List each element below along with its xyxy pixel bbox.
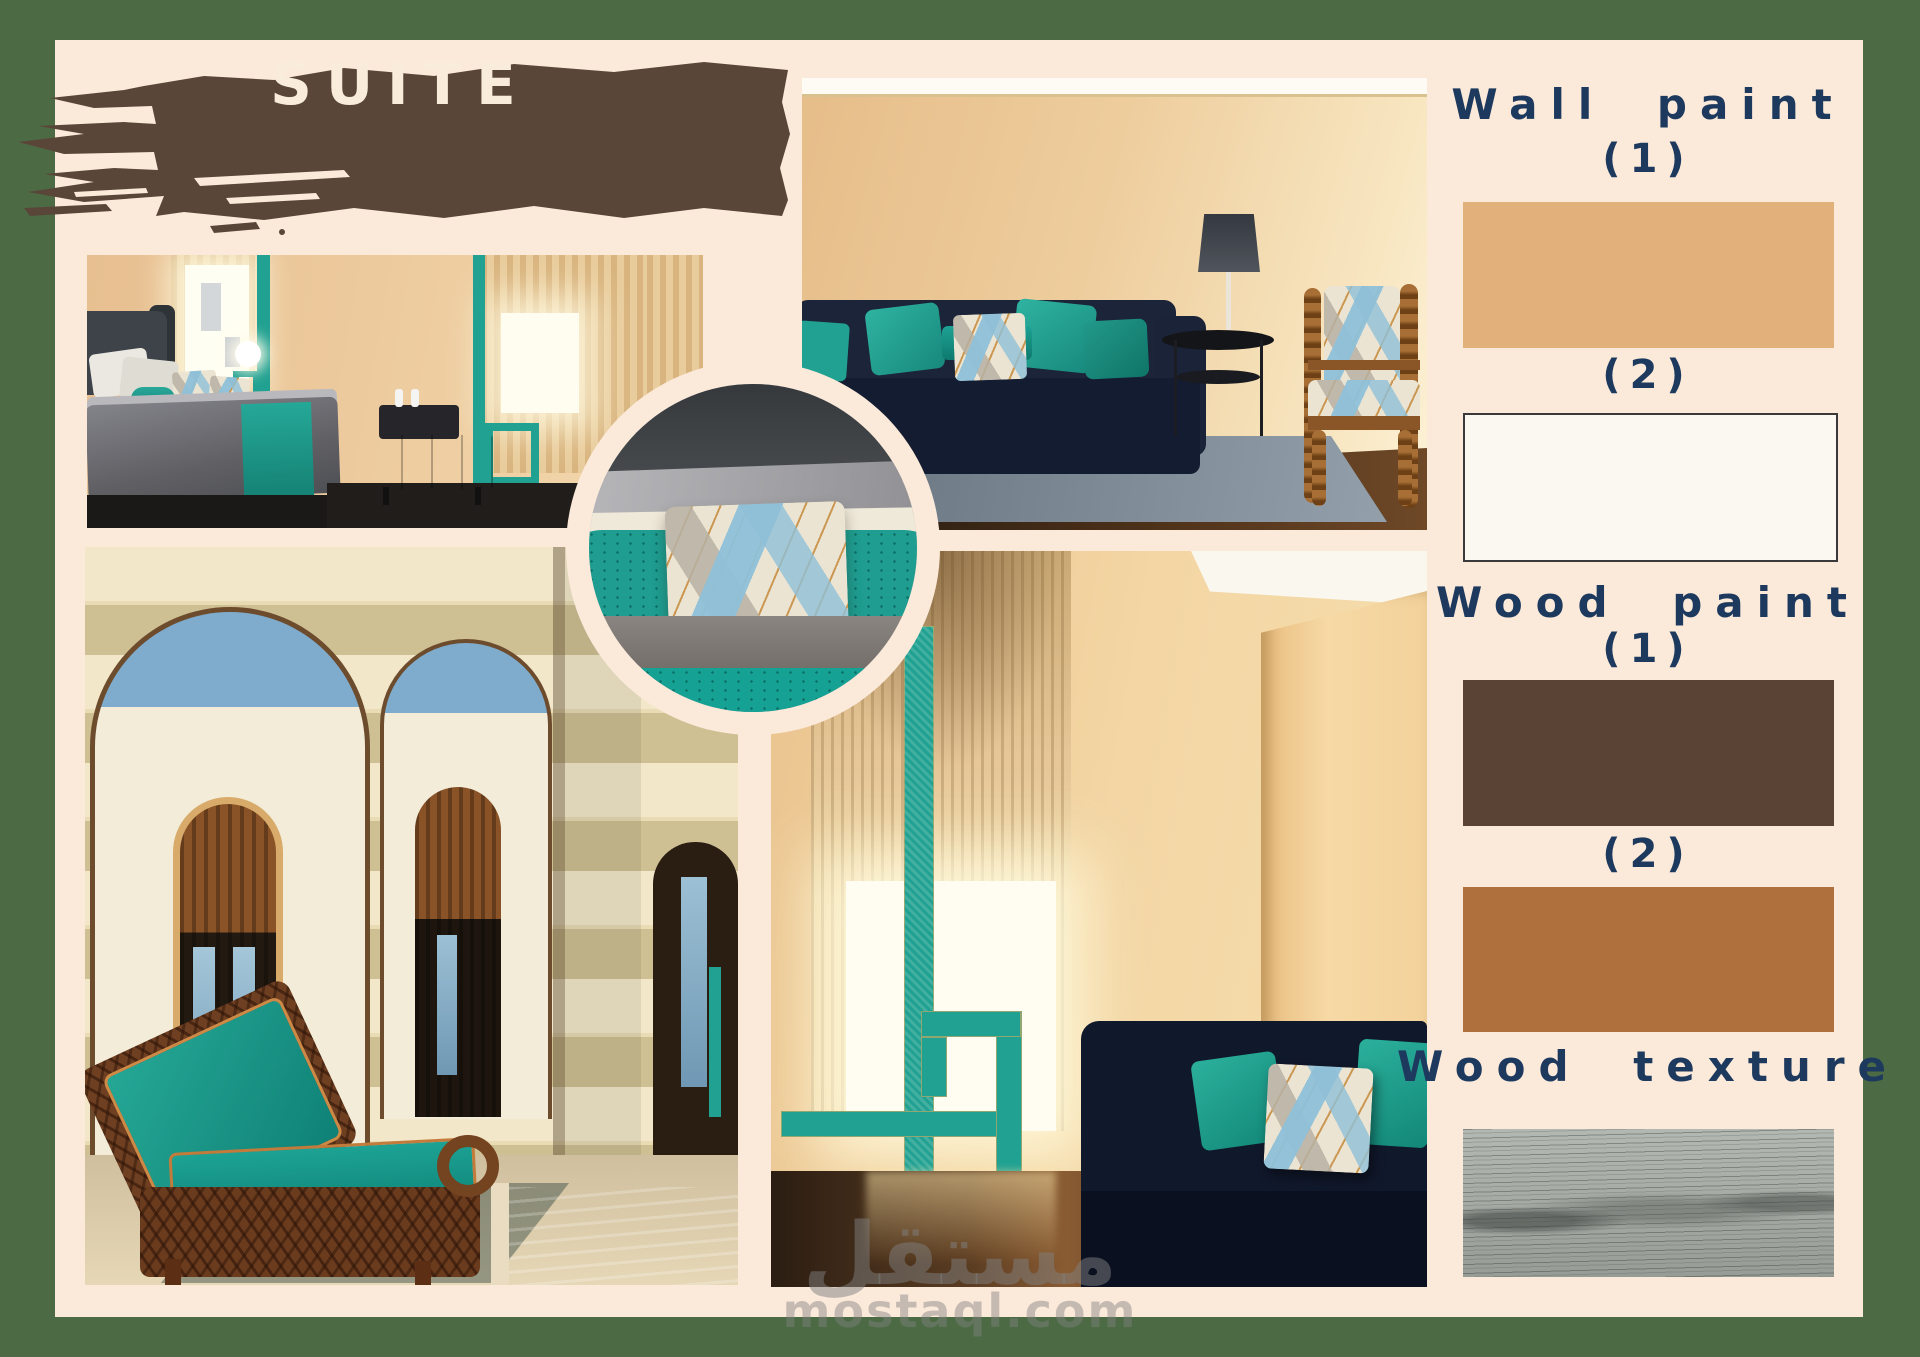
bedroom-bottle: [395, 389, 403, 407]
pool-water: [505, 1187, 738, 1285]
bedroom-wall-art: [201, 283, 221, 331]
side-table-top: [1162, 330, 1274, 350]
bedroom-bottle-2: [411, 389, 419, 407]
opening-curtain: [709, 967, 721, 1117]
bedroom-lamp-globe: [235, 341, 261, 367]
sofa-pillow-teal-3: [1083, 318, 1150, 379]
chaise-leg-2: [415, 1261, 431, 1285]
chair-leg: [1312, 430, 1326, 506]
bench-leg-2: [475, 487, 481, 505]
sofa-pillow-teal: [864, 302, 945, 377]
wall-paint-label-2: (2): [1368, 352, 1920, 398]
board-title: SUITE: [140, 50, 660, 118]
wall-paint-label-1: (1): [1368, 136, 1920, 182]
wood-paint-label-1: (1): [1368, 626, 1920, 672]
living-ceiling-shadow: [802, 94, 1427, 97]
wall-paint-heading: Wall paint: [1368, 80, 1920, 129]
living-ceiling: [802, 78, 1427, 94]
lr2-window-light: [846, 881, 1056, 1131]
pool-edge: [491, 1183, 509, 1285]
suite-mood-board: SUITE: [0, 0, 1920, 1357]
wood-paint-swatch-1: [1463, 680, 1834, 826]
pillow-closeup-inset: [566, 361, 940, 735]
courtyard-door-2: [415, 787, 501, 1117]
door-2-glass: [437, 935, 457, 1075]
lr2-pillow-geometric: [1263, 1063, 1373, 1173]
sofa-pillow-geometric: [953, 313, 1027, 381]
opening-window: [681, 877, 707, 1087]
mostaql-url-watermark: mostaql.com: [710, 1284, 1210, 1338]
bedroom-right-window: [501, 313, 579, 413]
lr2-key-bar-4: [921, 1037, 947, 1097]
wood-texture-heading: Wood texture: [1368, 1042, 1920, 1091]
chaise-arm-loop: [437, 1135, 499, 1197]
wall-paint-swatch-1: [1463, 202, 1834, 348]
inset-knit-runner: [589, 668, 917, 712]
lr2-key-bar-3: [921, 1011, 1021, 1037]
chaise-leg: [165, 1259, 181, 1285]
bedroom-greek-key-right: [485, 423, 539, 485]
bench-leg: [383, 487, 389, 505]
side-table-leg: [1174, 340, 1177, 436]
wood-paint-swatch-2: [1463, 887, 1834, 1032]
pillow-closeup-photo: [589, 384, 917, 712]
lamp-stem: [1226, 272, 1231, 330]
wall-paint-swatch-2: [1463, 413, 1838, 562]
column-shadow-edge: [553, 547, 565, 1192]
bedroom-side-table: [379, 405, 459, 439]
side-table-shelf: [1176, 370, 1260, 384]
wood-texture-swatch: [1463, 1129, 1834, 1277]
chair-leg-2: [1398, 430, 1412, 506]
side-table-leg-2: [1260, 340, 1263, 436]
chair-rail: [1308, 416, 1420, 430]
lamp-shade: [1198, 214, 1260, 272]
bedroom-bench: [373, 435, 493, 489]
wood-paint-label-2: (2): [1368, 831, 1920, 877]
wood-paint-heading: Wood paint: [1368, 578, 1920, 627]
lr2-key-bar: [781, 1111, 1011, 1137]
